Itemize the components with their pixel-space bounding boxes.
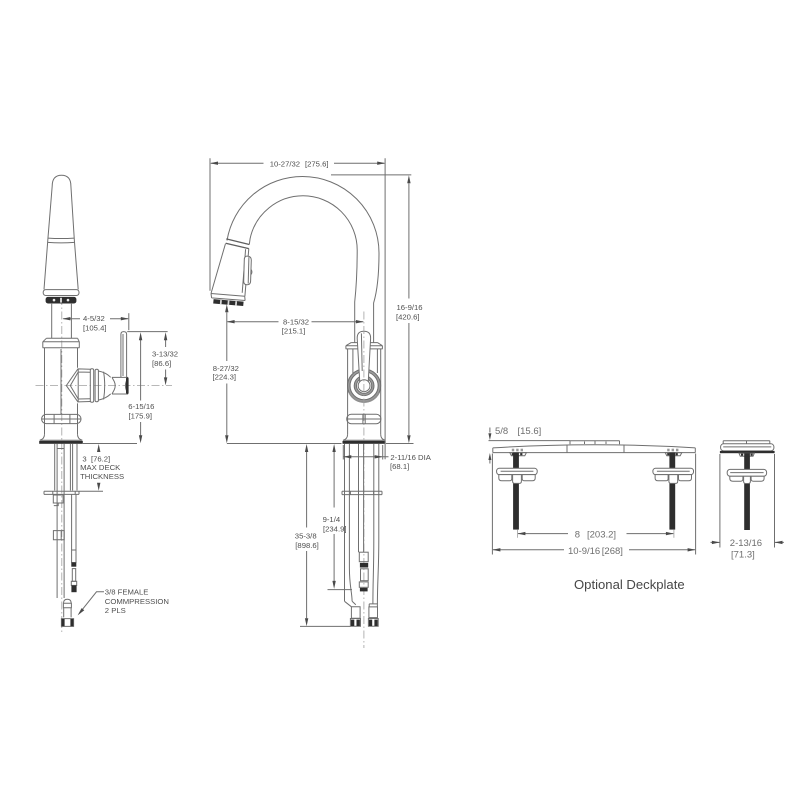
svg-text:2 PLS: 2 PLS [105, 606, 126, 615]
svg-text:[71.3]: [71.3] [731, 549, 755, 560]
svg-text:8-15/32: 8-15/32 [283, 318, 309, 327]
svg-text:[224.3]: [224.3] [213, 373, 237, 382]
svg-text:2-11/16 DIA: 2-11/16 DIA [390, 453, 431, 462]
svg-text:[68.1]: [68.1] [390, 462, 409, 471]
svg-text:[275.6]: [275.6] [305, 159, 329, 168]
svg-text:3-13/32: 3-13/32 [152, 350, 178, 359]
svg-text:5/8: 5/8 [495, 426, 508, 437]
svg-text:3 [76.2]: 3 [76.2] [82, 454, 110, 463]
svg-text:COMMPRESSION: COMMPRESSION [105, 597, 169, 606]
svg-text:10-27/32: 10-27/32 [270, 159, 300, 168]
svg-text:[420.6]: [420.6] [396, 312, 420, 321]
svg-text:16-9/16: 16-9/16 [397, 303, 423, 312]
svg-text:[105.4]: [105.4] [83, 323, 107, 332]
svg-text:[15.6]: [15.6] [518, 426, 542, 437]
svg-text:MAX DECK: MAX DECK [80, 463, 121, 472]
svg-text:[175.9]: [175.9] [129, 411, 153, 420]
svg-text:[268]: [268] [602, 546, 623, 557]
svg-text:[203.2]: [203.2] [587, 530, 616, 541]
svg-text:10-9/16: 10-9/16 [568, 546, 600, 557]
svg-text:6-15/16: 6-15/16 [128, 402, 154, 411]
svg-text:3/8 FEMALE: 3/8 FEMALE [105, 588, 149, 597]
svg-text:THICKNESS: THICKNESS [80, 472, 124, 481]
svg-text:[86.6]: [86.6] [152, 359, 171, 368]
svg-text:9-1/4: 9-1/4 [323, 515, 341, 524]
svg-text:[898.6]: [898.6] [295, 541, 319, 550]
svg-text:2-13/16: 2-13/16 [730, 538, 762, 549]
svg-text:8: 8 [575, 530, 580, 541]
svg-text:[215.1]: [215.1] [282, 327, 306, 336]
svg-text:Optional Deckplate: Optional Deckplate [574, 577, 685, 592]
svg-text:4-5/32: 4-5/32 [83, 314, 105, 323]
svg-text:[234.9]: [234.9] [323, 524, 347, 533]
svg-text:35-3/8: 35-3/8 [295, 532, 317, 541]
